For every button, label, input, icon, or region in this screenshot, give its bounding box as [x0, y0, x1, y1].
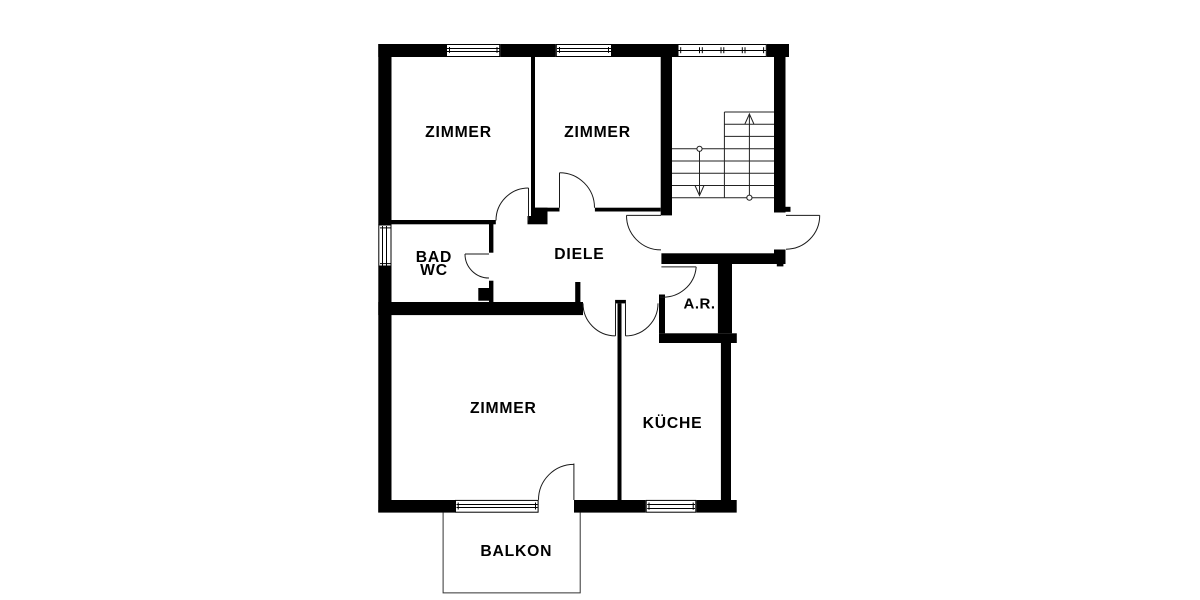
svg-text:KÜCHE: KÜCHE: [643, 413, 703, 432]
svg-text:ZIMMER: ZIMMER: [564, 124, 631, 141]
svg-text:ZIMMER: ZIMMER: [425, 124, 492, 141]
svg-text:ZIMMER: ZIMMER: [470, 400, 537, 417]
svg-text:WC: WC: [420, 262, 448, 279]
svg-text:A.R.: A.R.: [684, 295, 716, 312]
svg-text:DIELE: DIELE: [554, 246, 604, 263]
svg-text:BALKON: BALKON: [480, 543, 552, 560]
